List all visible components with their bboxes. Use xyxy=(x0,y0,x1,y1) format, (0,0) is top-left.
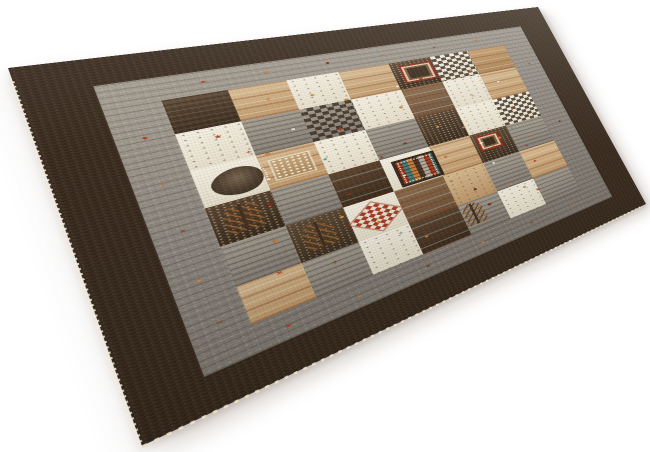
rug-photo: ★+◆★◆+★◆+★◆◆◆★+★◆★●●●●●●●●●●★+★+★+▪▪▪▪▪▪… xyxy=(8,7,646,446)
motif-glyph: ◆ xyxy=(309,93,315,97)
motif-glyph: ● xyxy=(474,39,478,41)
motif-glyph: ★ xyxy=(432,46,437,49)
product-photo-canvas: ★+◆★◆+★◆+★◆◆◆★+★◆★●●●●●●●●●●★+★+★+▪▪▪▪▪▪… xyxy=(0,0,650,452)
